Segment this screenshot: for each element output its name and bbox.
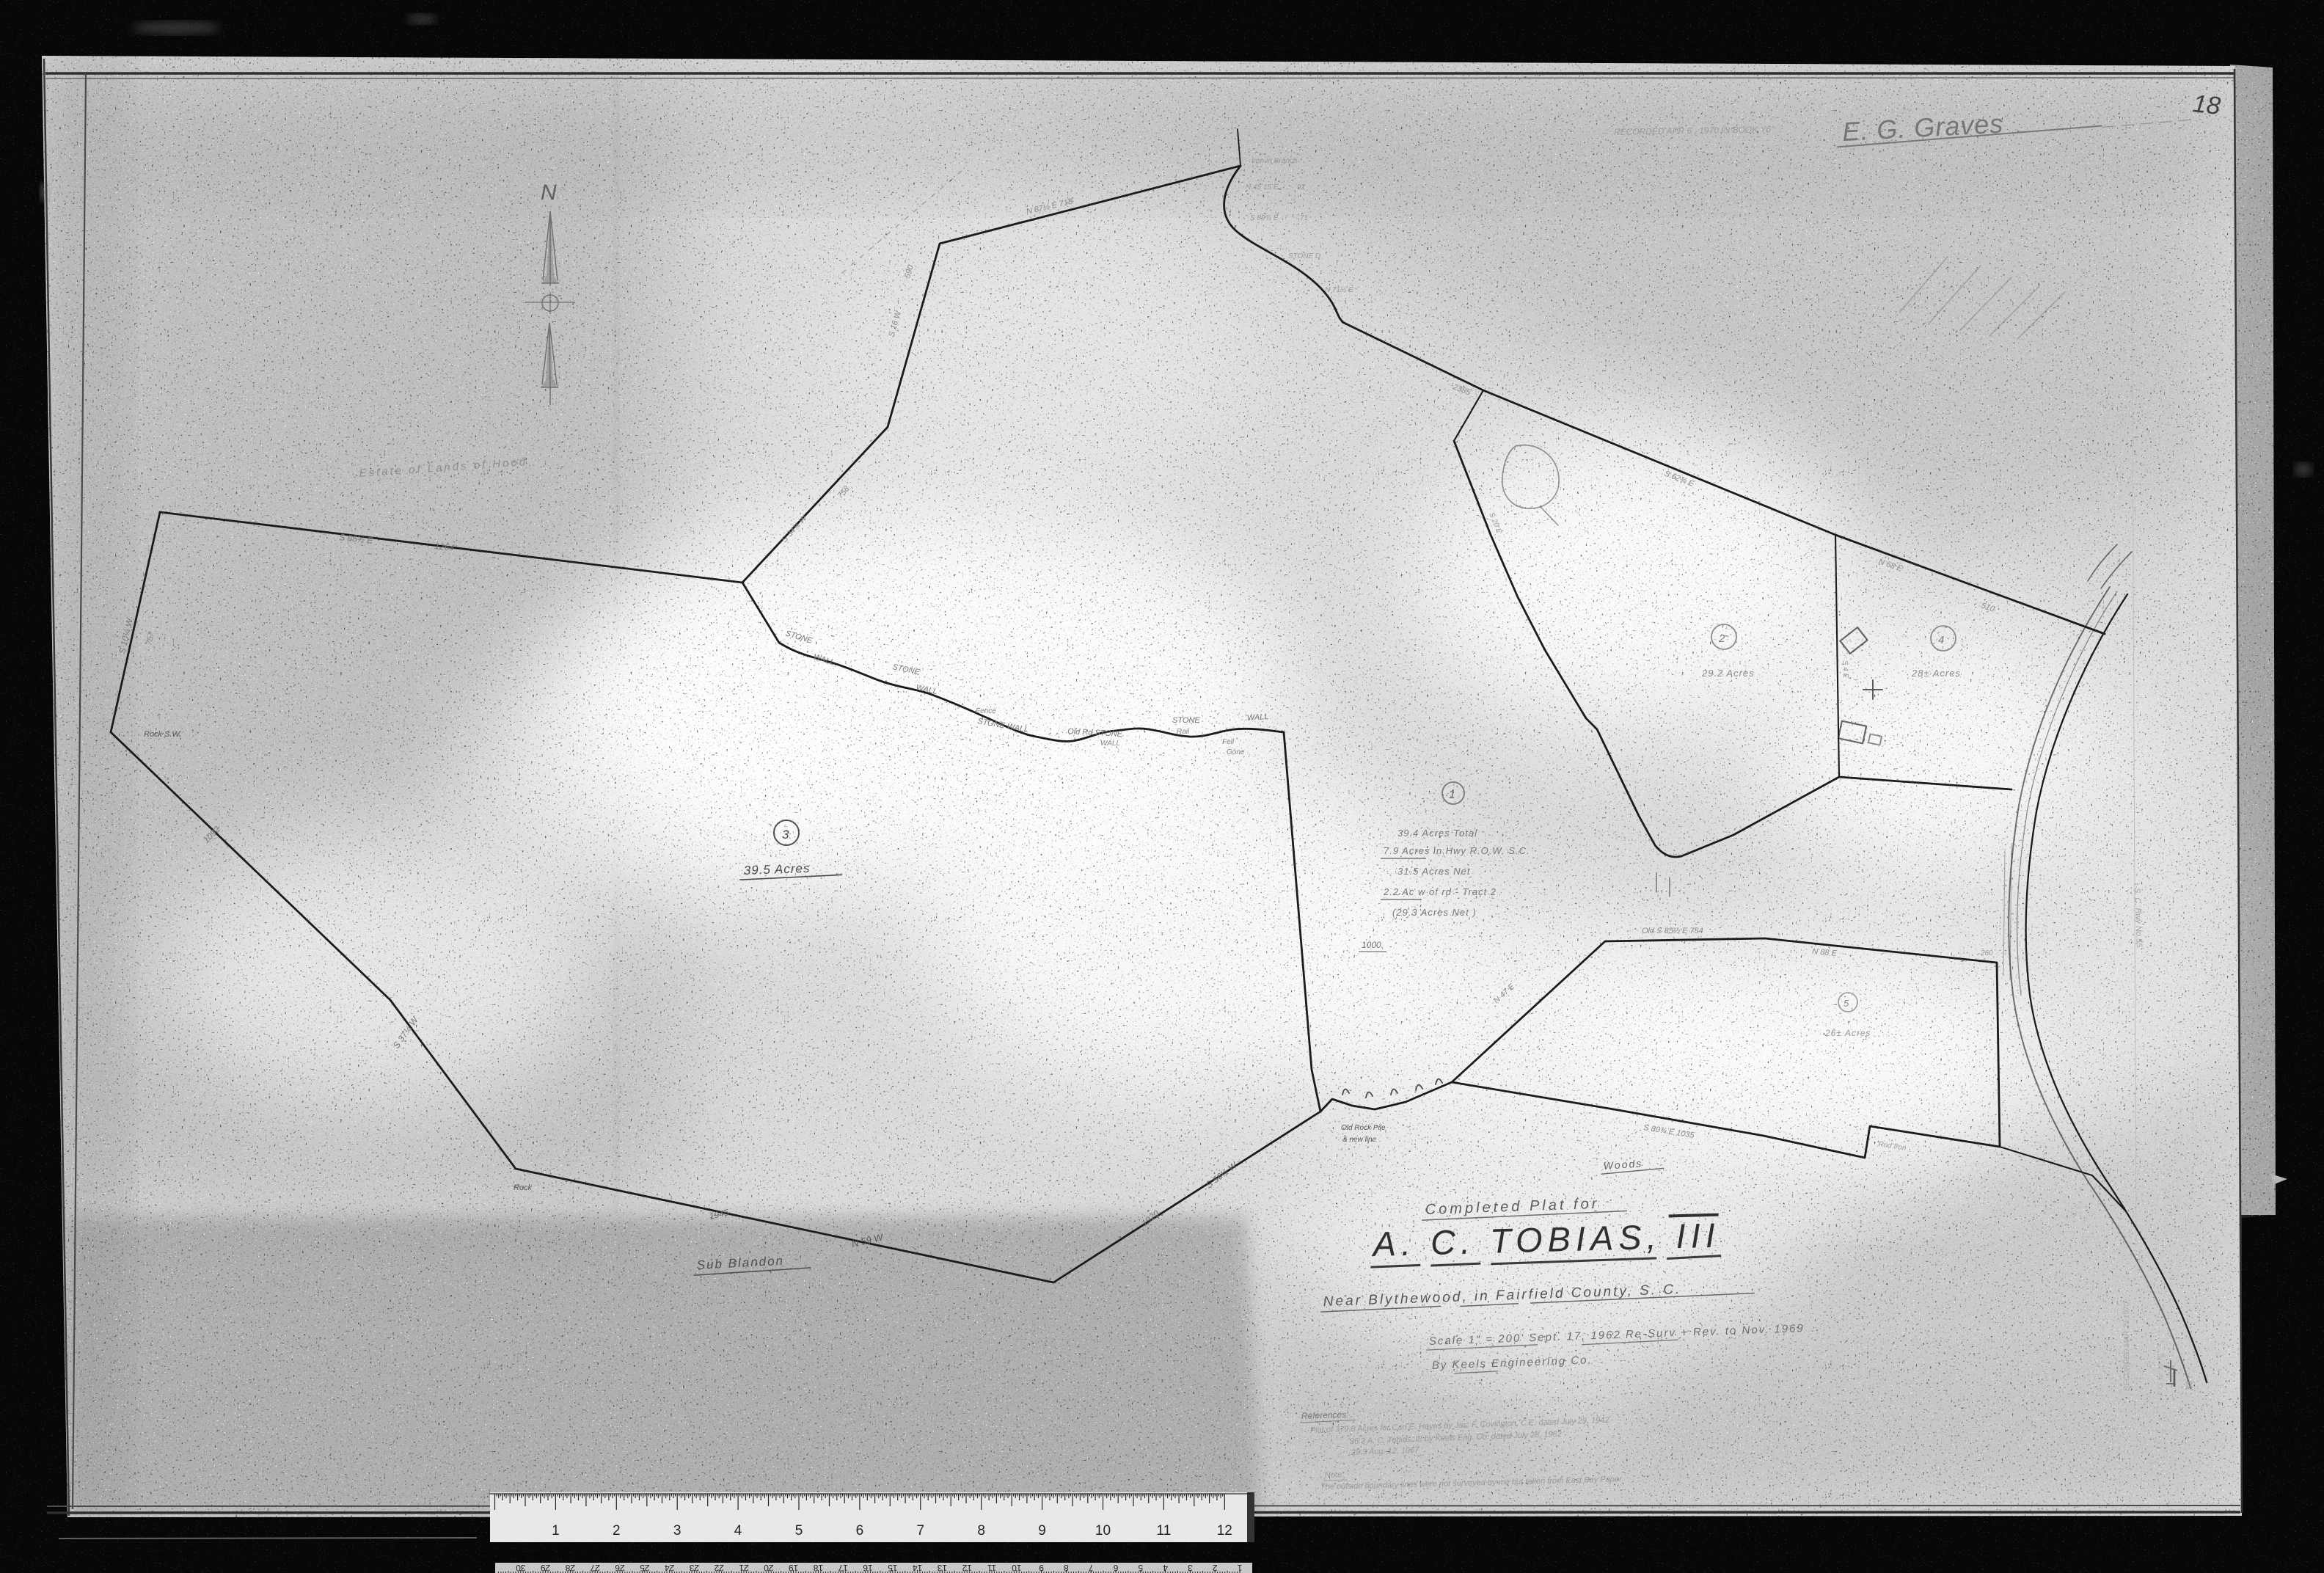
svg-text:(29.3 Acres Net ): (29.3 Acres Net )	[1392, 907, 1477, 918]
svg-text:Iron in Branch: Iron in Branch	[1251, 157, 1298, 165]
svg-text:2: 2	[613, 1523, 621, 1539]
svg-text:29: 29	[541, 1563, 551, 1573]
svg-text:N: N	[541, 180, 557, 205]
svg-text:8: 8	[1064, 1563, 1069, 1573]
svg-text:23: 23	[689, 1563, 699, 1573]
svg-text:25: 25	[640, 1563, 650, 1573]
svg-text:17: 17	[838, 1563, 848, 1573]
svg-text:-- -- -- - --- -: -- -- -- - --- -	[1541, 157, 1578, 165]
svg-text:Fell: Fell	[1222, 738, 1235, 746]
svg-text:27: 27	[590, 1563, 600, 1573]
svg-text:3: 3	[673, 1523, 682, 1539]
svg-text:Old Rock Pile: Old Rock Pile	[1341, 1124, 1386, 1132]
svg-text:$5: $5	[2185, 1380, 2194, 1390]
svg-text:4: 4	[1938, 634, 1944, 646]
svg-text:16: 16	[863, 1563, 873, 1573]
svg-text:2.2 Ac w of rd - Tract 2: 2.2 Ac w of rd - Tract 2	[1383, 886, 1497, 897]
svg-text:11: 11	[987, 1563, 996, 1573]
svg-text:28± Acres: 28± Acres	[1911, 668, 1961, 679]
svg-text:71: 71	[1300, 214, 1308, 222]
svg-text:Note:: Note:	[1325, 1470, 1345, 1480]
svg-text:14: 14	[913, 1563, 923, 1573]
svg-text:8: 8	[977, 1523, 985, 1539]
svg-text:5: 5	[1844, 998, 1849, 1009]
svg-text:4: 4	[734, 1523, 742, 1539]
svg-text:22: 22	[714, 1563, 724, 1573]
svg-text:6: 6	[1113, 1563, 1118, 1573]
svg-text:N 71½ E: N 71½ E	[1325, 286, 1353, 294]
svg-text:5: 5	[795, 1523, 803, 1539]
svg-text:26: 26	[615, 1563, 625, 1573]
svg-text:4: 4	[1163, 1563, 1168, 1573]
svg-text:31.5 Acres Net: 31.5 Acres Net	[1397, 866, 1471, 877]
svg-text:5: 5	[1138, 1563, 1143, 1573]
svg-text:18: 18	[813, 1563, 823, 1573]
svg-text:15: 15	[888, 1563, 898, 1573]
svg-text:13: 13	[937, 1563, 947, 1573]
svg-text:1000: 1000	[1362, 940, 1381, 950]
svg-text:7: 7	[1089, 1563, 1094, 1573]
svg-text:Rock: Rock	[514, 1183, 533, 1192]
svg-text:Gone: Gone	[1227, 748, 1245, 756]
svg-text:21: 21	[739, 1563, 749, 1573]
svg-text:12: 12	[962, 1563, 972, 1573]
svg-text:1: 1	[1237, 1563, 1242, 1573]
svg-text:29.2 Acres: 29.2 Acres	[1701, 668, 1755, 679]
svg-text:11: 11	[1157, 1523, 1172, 1539]
svg-text:24: 24	[665, 1563, 675, 1573]
svg-text:1: 1	[552, 1523, 560, 1539]
svg-text:-- --- --: -- --- --	[1542, 220, 1564, 228]
svg-text:References:: References:	[1301, 1409, 1349, 1421]
svg-text:RECORDED MAR 23 1970: RECORDED MAR 23 1970	[2123, 1302, 2131, 1391]
svg-text:260: 260	[1980, 949, 1993, 957]
svg-text:WALL: WALL	[1100, 740, 1120, 748]
svg-text:F. C. W. 19 70: F. C. W. 19 70	[2157, 1354, 2164, 1395]
svg-text:STONE: STONE	[1172, 716, 1200, 725]
svg-text:28: 28	[565, 1563, 575, 1573]
svg-text:S 4 E: S 4 E	[1841, 660, 1849, 679]
svg-text:9: 9	[1038, 1523, 1046, 1539]
svg-text:10: 10	[1012, 1563, 1022, 1573]
svg-text:1: 1	[1449, 789, 1455, 801]
svg-text:2: 2	[1213, 1563, 1218, 1573]
svg-text:Rail: Rail	[1177, 728, 1190, 736]
svg-text:9: 9	[1039, 1563, 1044, 1573]
svg-text:6: 6	[856, 1523, 864, 1539]
svg-text:2: 2	[1718, 632, 1725, 645]
svg-text:39.4 Acres Total: 39.4 Acres Total	[1397, 828, 1477, 839]
svg-text:39.5 Acres: 39.5 Acres	[743, 861, 810, 877]
svg-text:-- -- -- --: -- -- -- --	[1546, 182, 1573, 190]
svg-text:10: 10	[1095, 1523, 1111, 1539]
svg-text:19: 19	[789, 1563, 799, 1573]
svg-text:26± Acres: 26± Acres	[1824, 1028, 1871, 1038]
svg-text:92: 92	[1297, 183, 1306, 191]
svg-text:18: 18	[2191, 90, 2222, 120]
svg-text:STONE D: STONE D	[1288, 252, 1320, 260]
svg-text:1264: 1264	[434, 541, 455, 553]
svg-text:Old S 85½ E 754: Old S 85½ E 754	[1642, 927, 1703, 935]
svg-text:12: 12	[1217, 1523, 1232, 1539]
svg-text:3: 3	[782, 828, 789, 842]
svg-text:Rock S.W.: Rock S.W.	[144, 730, 182, 739]
svg-text:7: 7	[917, 1523, 925, 1539]
svg-text:N 45 15 E: N 45 15 E	[1246, 183, 1279, 191]
svg-text:3: 3	[1188, 1563, 1193, 1573]
svg-text:S 89¾ E: S 89¾ E	[1250, 214, 1279, 222]
svg-text:WALL: WALL	[1246, 712, 1269, 723]
svg-text:7.9 Acres in Hwy R.O.W. S.C: 7.9 Acres in Hwy R.O.W. S.C.	[1384, 845, 1530, 856]
svg-text:30: 30	[516, 1563, 526, 1573]
svg-text:& new line: & new line	[1342, 1136, 1377, 1144]
svg-text:Fence: Fence	[976, 707, 996, 715]
svg-text:20: 20	[764, 1563, 774, 1573]
